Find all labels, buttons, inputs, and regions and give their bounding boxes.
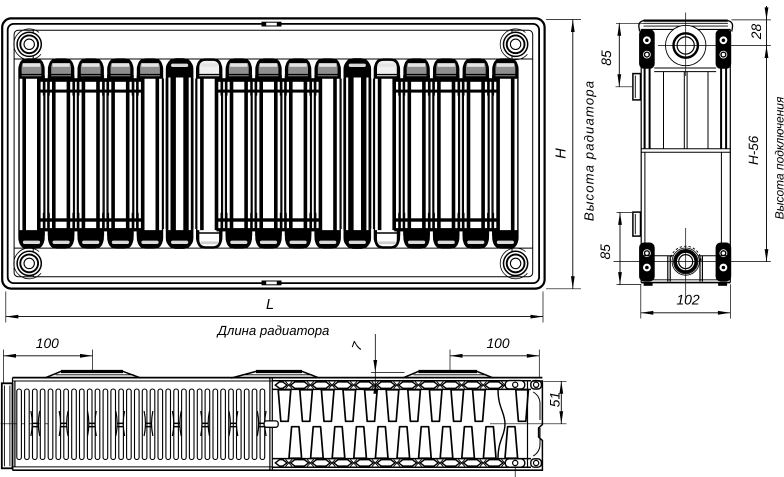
svg-text:H: H (554, 148, 570, 159)
svg-text:L: L (266, 297, 274, 313)
svg-text:100: 100 (486, 336, 509, 351)
svg-text:102: 102 (676, 292, 700, 308)
svg-text:51: 51 (548, 392, 563, 407)
svg-text:28: 28 (749, 24, 764, 41)
svg-text:85: 85 (598, 244, 613, 260)
svg-text:H-56: H-56 (746, 135, 761, 165)
svg-text:Высота подключения: Высота подключения (773, 96, 784, 219)
svg-text:100: 100 (36, 336, 59, 351)
svg-text:85: 85 (599, 50, 614, 66)
svg-text:Высота радиатора: Высота радиатора (582, 80, 597, 221)
svg-text:Длина радиатора: Длина радиатора (216, 323, 330, 338)
